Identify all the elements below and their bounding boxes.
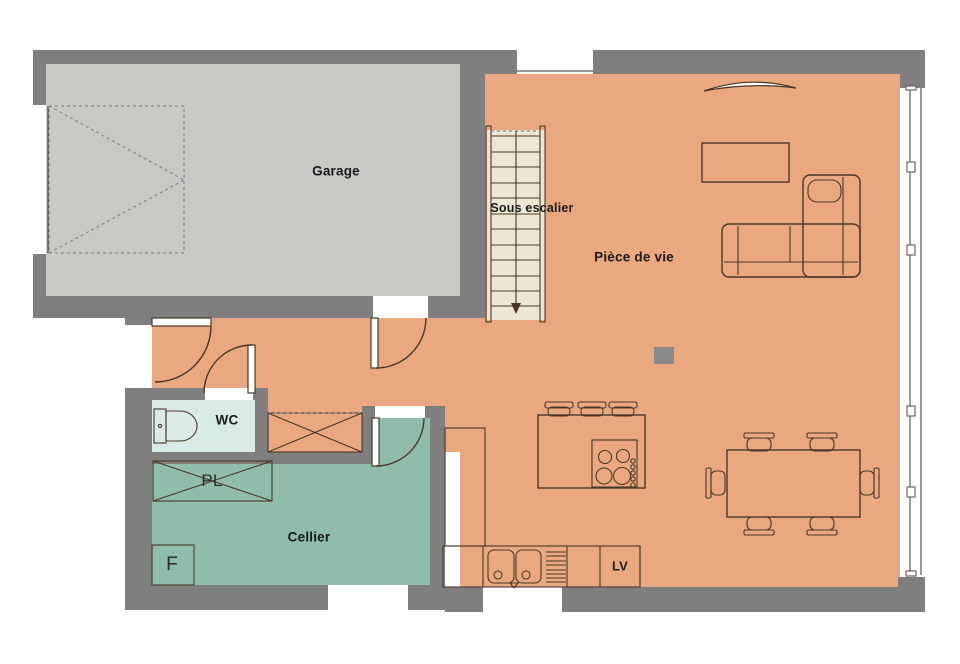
sliding-bay-window (906, 86, 921, 576)
hall-closet (268, 413, 362, 452)
cellier-door (372, 418, 424, 466)
arch-marking (704, 82, 796, 91)
garage-label: Garage (312, 164, 360, 179)
wc-label: WC (216, 413, 239, 428)
floor-plan: Garage Sous escalier Pièce de vie WC Cel… (0, 0, 960, 664)
garage-house-door (371, 318, 426, 368)
sous-escalier-label: Sous escalier (490, 201, 573, 215)
staircase (486, 126, 545, 322)
garage-door-swing (48, 106, 184, 253)
entrance-door (152, 318, 211, 382)
toilet (154, 409, 197, 443)
bar-stools (545, 402, 637, 416)
cooktop (592, 440, 637, 487)
piece-de-vie-label: Pièce de vie (594, 250, 674, 265)
placard-label: PL (201, 471, 222, 491)
plan-linework (0, 0, 960, 664)
dining-table (727, 450, 860, 517)
sofa (722, 175, 860, 277)
dining-chairs (706, 433, 879, 535)
wc-door (204, 345, 255, 393)
kitchen-sink (488, 550, 566, 588)
sideboard (702, 143, 789, 182)
cellier-label: Cellier (288, 530, 331, 545)
fridge-label: F (166, 554, 178, 576)
dishwasher-label: LV (612, 559, 628, 574)
stairs-direction-arrow (511, 303, 521, 314)
